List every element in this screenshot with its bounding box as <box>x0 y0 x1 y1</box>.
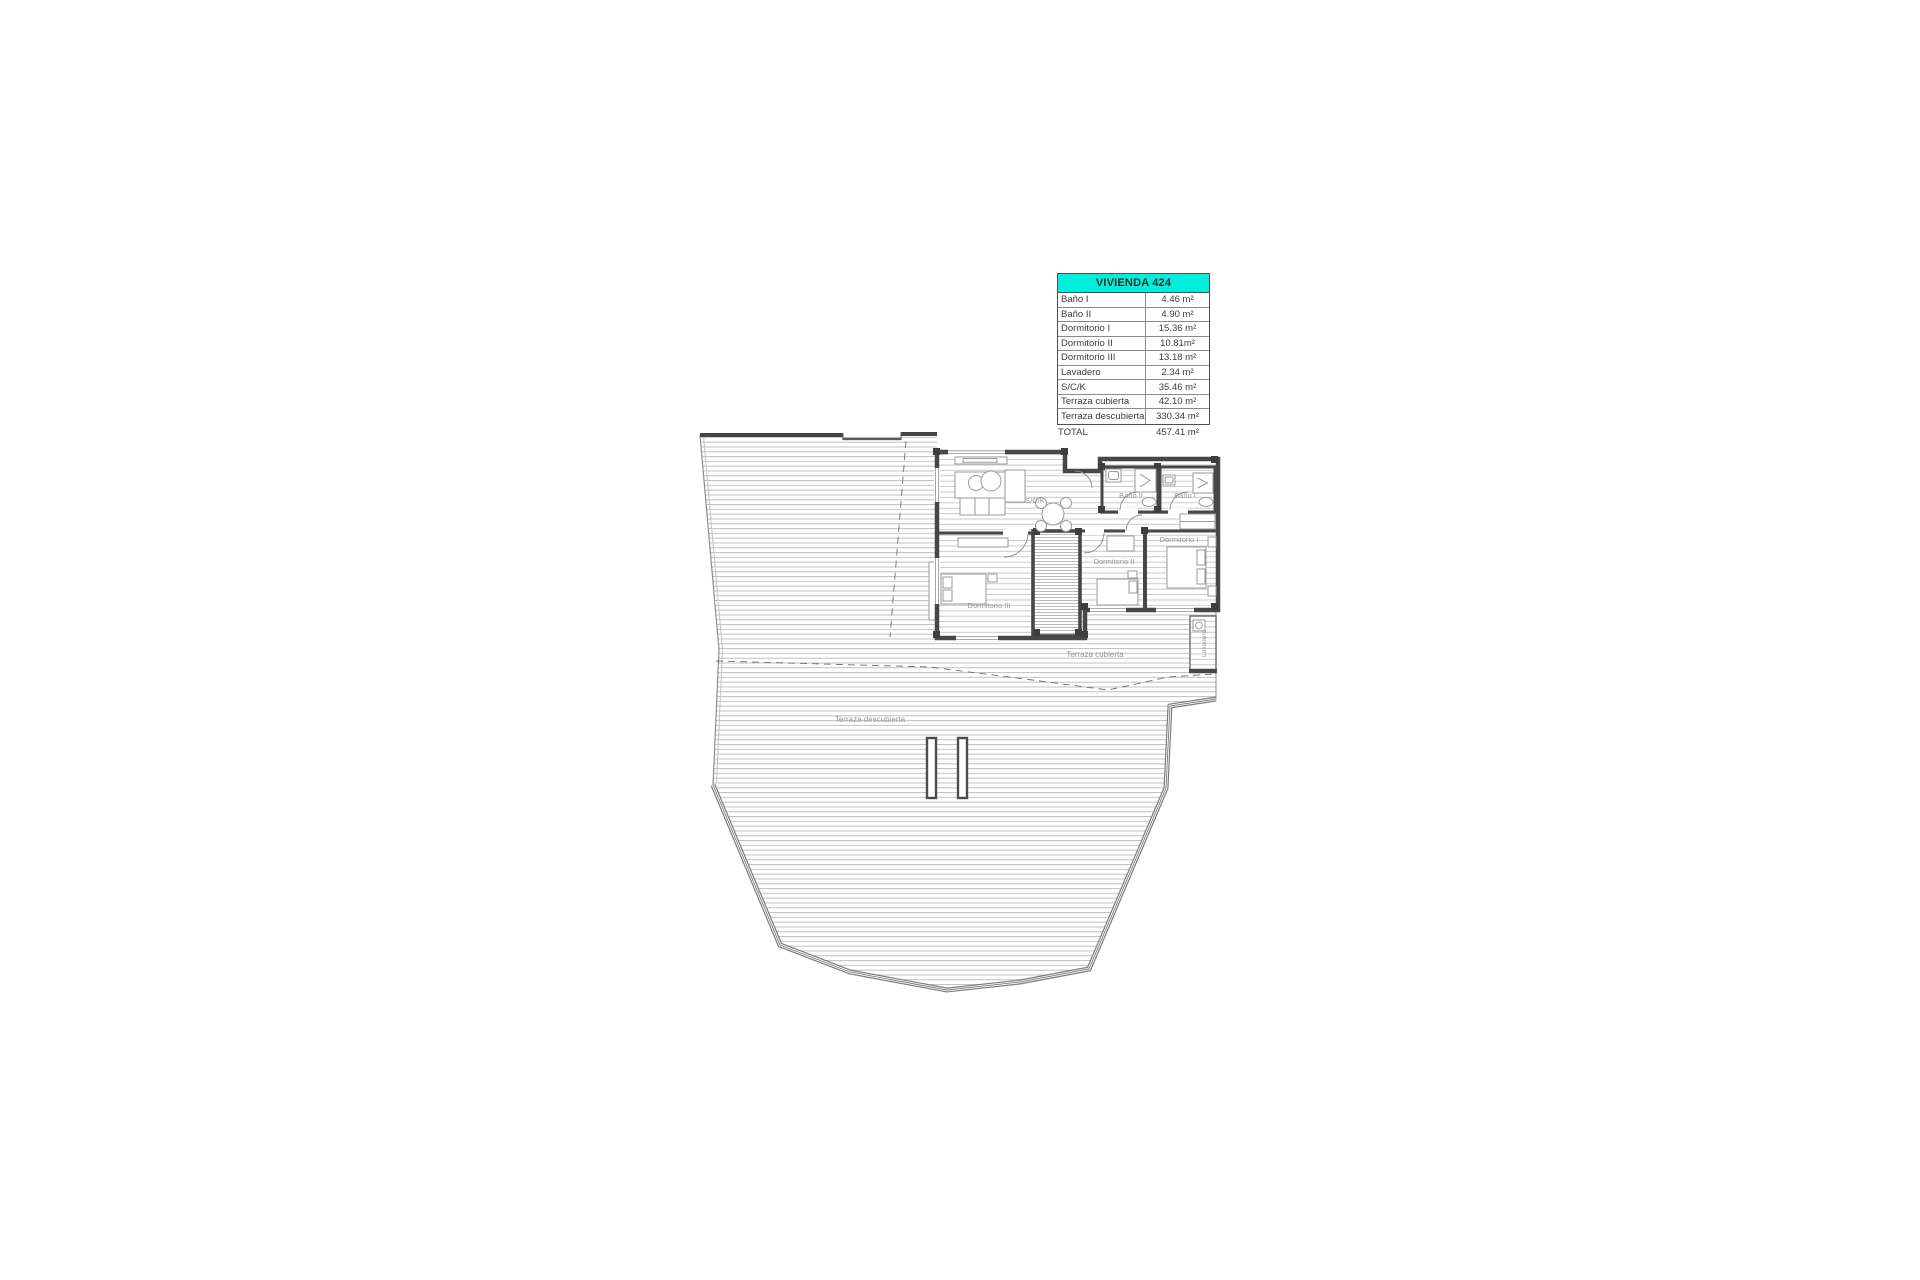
room-label: Terraza descubierta <box>1058 409 1146 424</box>
label-dorm1: Dormitorio I <box>1160 535 1199 544</box>
area-table-grid: VIVIENDA 424 Baño I4.46 m²Baño II4.90 m²… <box>1057 273 1210 425</box>
table-total-row: TOTAL 457.41 m² <box>1057 425 1210 440</box>
table-row: Baño II4.90 m² <box>1058 308 1209 323</box>
room-area-value: 4.90 m² <box>1146 309 1209 320</box>
label-dorm3: Dormitorio III <box>968 601 1011 610</box>
area-table-body: Baño I4.46 m²Baño II4.90 m²Dormitorio I1… <box>1058 293 1209 424</box>
page: { "panel": { "title": "VIVIENDA 424", "r… <box>0 0 1920 1280</box>
table-row: Dormitorio I15.36 m² <box>1058 322 1209 337</box>
area-table: VIVIENDA 424 Baño I4.46 m²Baño II4.90 m²… <box>1057 273 1210 439</box>
table-row: Terraza descubierta330.34 m² <box>1058 409 1209 424</box>
room-label: Baño II <box>1058 308 1146 322</box>
room-label: Dormitorio III <box>1058 351 1146 365</box>
table-title: VIVIENDA 424 <box>1058 274 1209 293</box>
label-dorm2: Dormitorio II <box>1094 557 1135 566</box>
room-area-value: 13.18 m² <box>1146 352 1209 363</box>
room-label: Terraza cubierta <box>1058 395 1146 409</box>
room-label: Baño I <box>1058 293 1146 307</box>
room-area-value: 10.81m² <box>1146 338 1209 349</box>
room-label: S/C/K <box>1058 380 1146 394</box>
room-area-value: 4.46 m² <box>1146 294 1209 305</box>
room-area-value: 2.34 m² <box>1146 367 1209 378</box>
table-row: Lavadero2.34 m² <box>1058 366 1209 381</box>
floor-plan-drawing: S/C/K Baño II Baño I Dormitorio I Dormit… <box>0 0 1920 1280</box>
stair-shaft <box>1033 531 1080 636</box>
label-terraza-cubierta: Terraza cubierta <box>1066 650 1124 659</box>
table-row: Dormitorio III13.18 m² <box>1058 351 1209 366</box>
label-bano2: Baño II <box>1119 491 1143 500</box>
table-row: Terraza cubierta42.10 m² <box>1058 395 1209 410</box>
table-row: Baño I4.46 m² <box>1058 293 1209 308</box>
label-sck: S/C/K <box>1025 496 1045 505</box>
room-area-value: 35.46 m² <box>1146 382 1209 393</box>
table-row: S/C/K35.46 m² <box>1058 380 1209 395</box>
room-label: Dormitorio I <box>1058 322 1146 336</box>
room-area-value: 330.34 m² <box>1146 411 1209 422</box>
label-terraza-descubierta: Terraza descubierta <box>835 715 906 724</box>
terrace-bar <box>927 738 936 798</box>
total-value: 457.41 m² <box>1145 427 1210 438</box>
label-lavadero: Lavadero <box>1201 630 1208 657</box>
terrace-bar <box>958 738 967 798</box>
room-label: Dormitorio II <box>1058 337 1146 351</box>
room-label: Lavadero <box>1058 366 1146 380</box>
room-area-value: 42.10 m² <box>1146 396 1209 407</box>
room-area-value: 15.36 m² <box>1146 323 1209 334</box>
total-label: TOTAL <box>1057 427 1145 438</box>
table-row: Dormitorio II10.81m² <box>1058 337 1209 352</box>
label-bano1: Baño I <box>1174 491 1196 500</box>
